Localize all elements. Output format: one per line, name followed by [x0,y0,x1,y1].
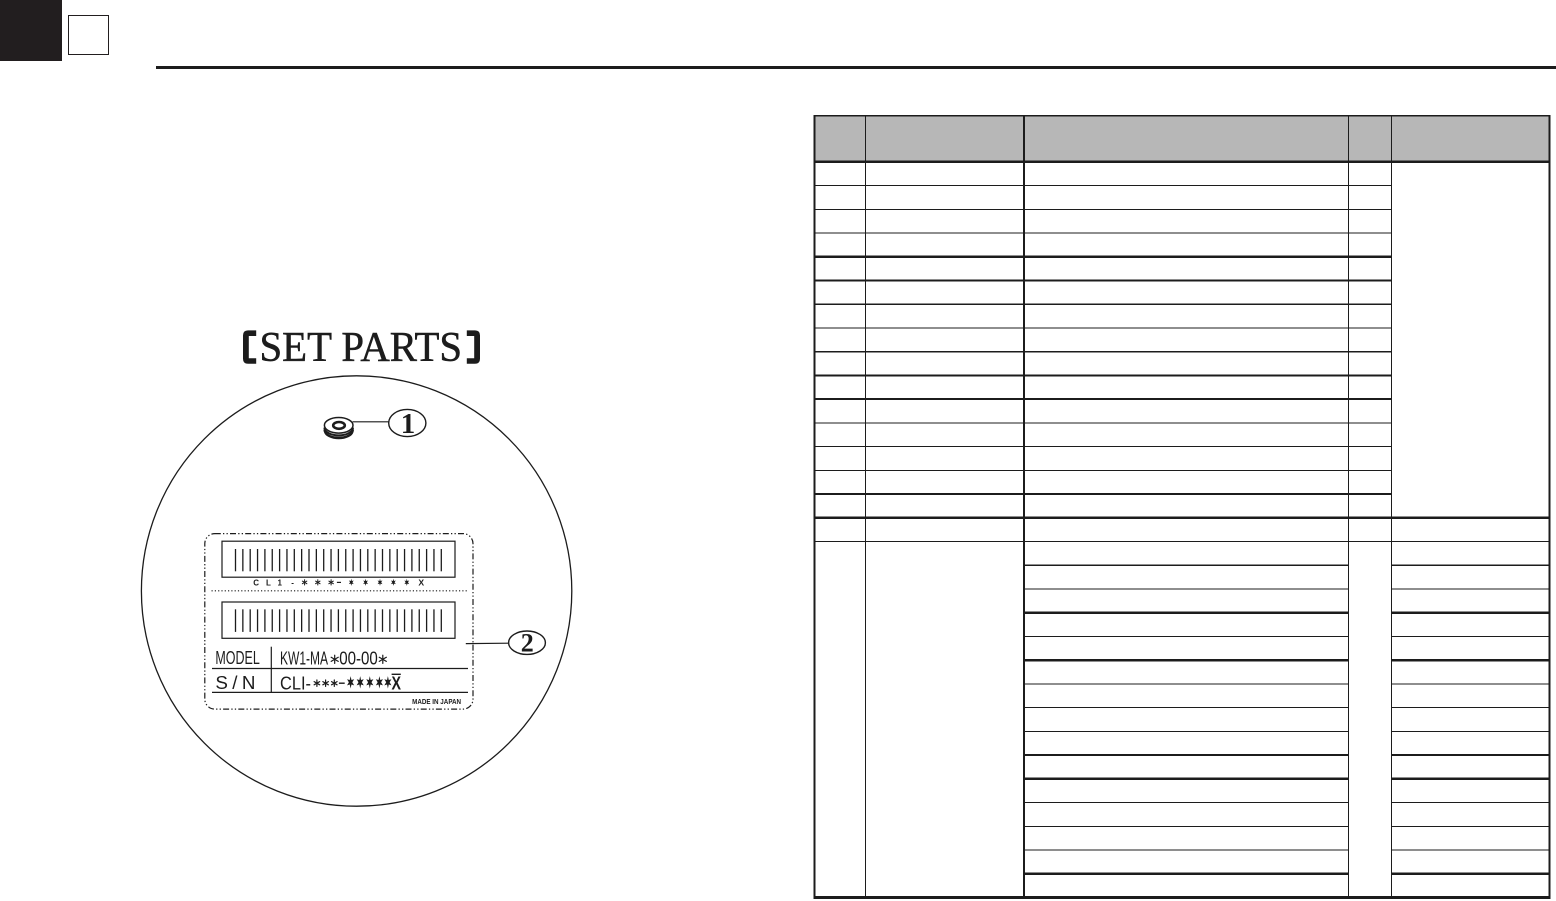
svg-text:C: C [253,578,259,587]
svg-text:MODEL: MODEL [215,647,259,668]
svg-text:S/N: S/N [215,672,255,693]
svg-text:1: 1 [401,408,416,440]
svg-text:KW1-MA: KW1-MA [280,648,328,669]
svg-text:L: L [266,578,271,587]
svg-text:CLI-: CLI- [280,672,311,693]
svg-text:-: - [291,578,294,587]
svg-text:1: 1 [277,578,282,587]
svg-text:2: 2 [521,629,534,658]
svg-text:00-00: 00-00 [339,648,378,669]
svg-text:SET PARTS: SET PARTS [260,325,463,371]
svg-text:MADE IN JAPAN: MADE IN JAPAN [412,699,461,706]
svg-text:X: X [391,672,401,693]
svg-text:X: X [418,578,424,588]
